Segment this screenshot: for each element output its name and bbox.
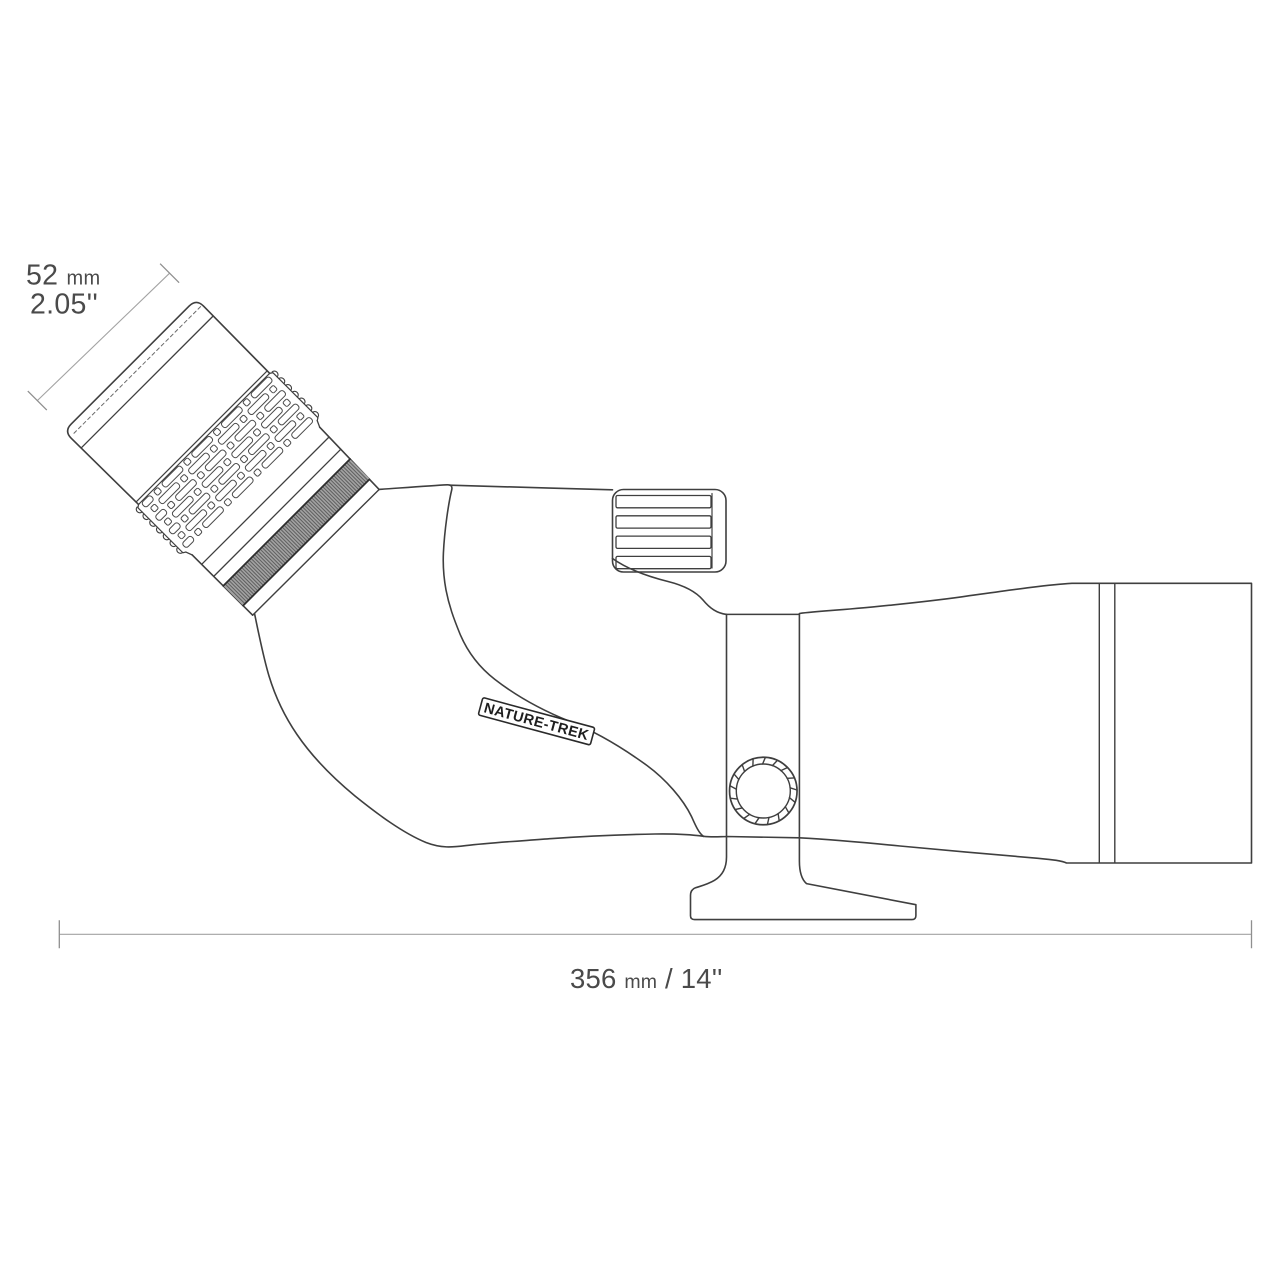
svg-text:2.05'': 2.05'' (30, 289, 98, 321)
